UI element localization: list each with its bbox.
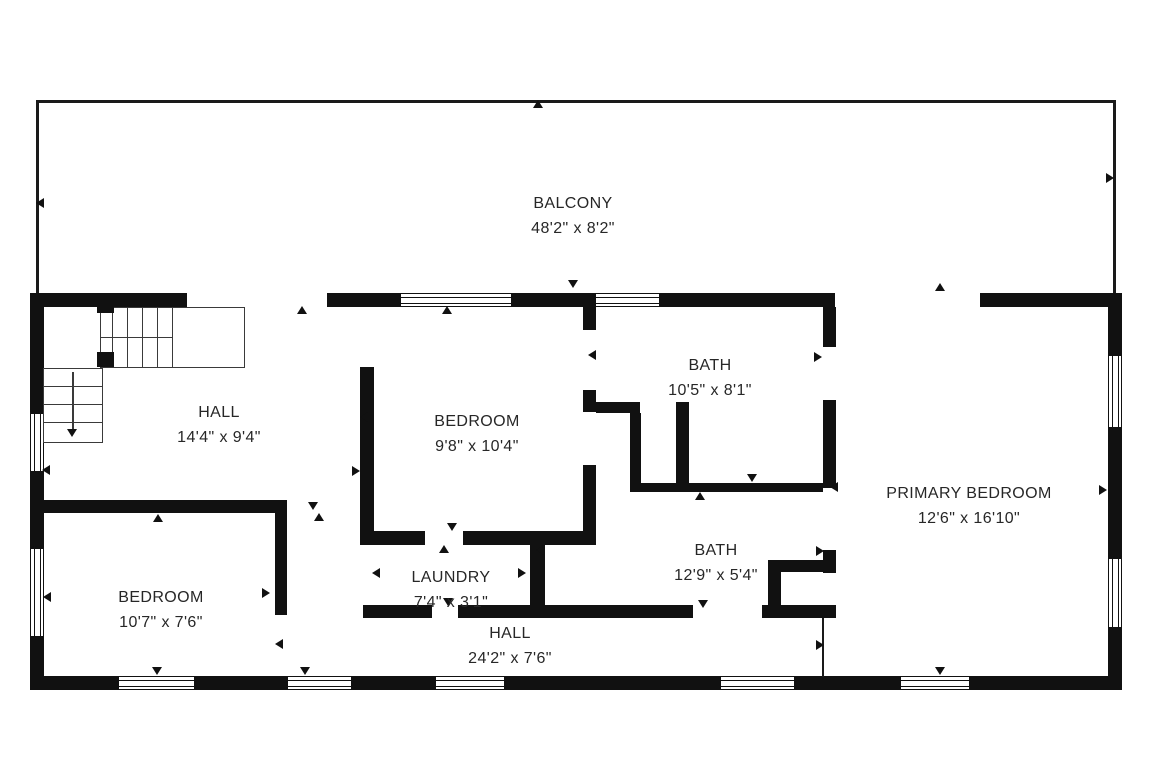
room-label: BEDROOM9'8" x 10'4" [434,409,519,459]
window-glass-line [595,297,660,304]
door-marker [816,640,824,650]
wall-segment [583,390,596,412]
wall-segment [360,367,374,545]
door-marker [153,514,163,522]
wall-segment [762,605,836,618]
wall-segment [512,293,595,307]
door-marker [352,466,360,476]
room-dimensions: 24'2" x 7'6" [468,646,552,671]
door-marker [36,198,44,208]
wall-segment [1108,428,1122,558]
wall-segment [676,402,689,492]
room-dimensions: 12'6" x 16'10" [886,506,1051,531]
floor-plan: BALCONY48'2" x 8'2"HALL14'4" x 9'4"BEDRO… [0,0,1152,768]
door-marker [747,474,757,482]
room-name: BATH [674,538,758,563]
room-name: LAUNDRY [412,565,491,590]
room-label: BATH12'9" x 5'4" [674,538,758,588]
door-marker [698,600,708,608]
railing-line [36,100,39,293]
door-marker [152,667,162,675]
wall-segment [980,293,1122,307]
window-glass-line [1112,558,1119,628]
wall-segment [596,402,640,413]
door-marker [372,568,380,578]
window [435,676,505,690]
room-name: HALL [468,621,552,646]
window-glass-line [400,297,512,304]
wall-segment [44,500,287,513]
railing-line [36,100,1115,103]
window [400,293,512,307]
door-marker [300,667,310,675]
room-dimensions: 12'9" x 5'4" [674,563,758,588]
door-marker [816,546,824,556]
door-marker [360,412,368,422]
door-marker [1099,485,1107,495]
door-marker [42,465,50,475]
room-dimensions: 14'4" x 9'4" [177,425,261,450]
door-marker [43,592,51,602]
room-name: BEDROOM [118,585,203,610]
room-label: HALL24'2" x 7'6" [468,621,552,671]
door-marker [314,513,324,521]
door-marker [439,545,449,553]
wall-segment [352,676,435,690]
window-glass-line [720,680,795,687]
stair-tread [172,307,173,368]
room-name: HALL [177,400,261,425]
wall-segment [30,472,44,548]
wall-segment [823,307,836,347]
door-marker [588,350,596,360]
room-dimensions: 48'2" x 8'2" [531,216,615,241]
wall-segment [327,293,400,307]
room-label: LAUNDRY7'4" x 3'1" [412,565,491,615]
window-glass-line [900,680,970,687]
door-marker [1106,173,1114,183]
wall-segment [1108,293,1122,355]
wall-segment [458,605,693,618]
door-marker [814,352,822,362]
wall-segment [30,637,44,690]
room-name: BALCONY [531,191,615,216]
wall-segment [583,307,596,330]
room-label: PRIMARY BEDROOM12'6" x 16'10" [886,481,1051,531]
door-marker [935,667,945,675]
wall-segment [630,413,641,492]
wall-segment [970,676,1122,690]
room-name: BEDROOM [434,409,519,434]
room-label: BEDROOM10'7" x 7'6" [118,585,203,635]
door-marker [830,482,838,492]
window-glass-line [34,548,41,637]
room-label: BATH10'5" x 8'1" [668,353,752,403]
stair-newel-post [97,301,114,313]
wall-segment [660,293,835,307]
wall-segment [630,483,823,492]
room-name: BATH [668,353,752,378]
wall-segment [275,500,287,615]
stair-newel-post [97,352,114,367]
door-marker [447,523,457,531]
window [30,548,44,637]
railing-line [1113,100,1116,293]
window [287,676,352,690]
stair-down-arrow-head [67,429,77,437]
wall-segment [360,531,425,545]
door-marker [308,502,318,510]
door-marker [262,588,270,598]
window [30,413,44,472]
room-dimensions: 10'7" x 7'6" [118,610,203,635]
door-marker [533,100,543,108]
room-dimensions: 7'4" x 3'1" [412,590,491,615]
window [118,676,195,690]
wall-segment [1108,628,1122,690]
wall-segment [795,676,900,690]
door-marker [935,283,945,291]
stair-landing-line [100,337,172,338]
room-dimensions: 9'8" x 10'4" [434,434,519,459]
room-name: PRIMARY BEDROOM [886,481,1051,506]
door-marker [536,545,544,555]
window [900,676,970,690]
wall-segment [30,293,44,413]
door-marker [568,280,578,288]
window-glass-line [1112,355,1119,428]
window-glass-line [118,680,195,687]
door-marker [275,639,283,649]
window [1108,558,1122,628]
room-label: HALL14'4" x 9'4" [177,400,261,450]
window-glass-line [435,680,505,687]
room-dimensions: 10'5" x 8'1" [668,378,752,403]
window [595,293,660,307]
window-glass-line [287,680,352,687]
door-marker [695,492,705,500]
door-marker [442,306,452,314]
window [1108,355,1122,428]
wall-segment [195,676,287,690]
wall-segment [823,400,836,488]
door-marker [518,568,526,578]
wall-segment [583,465,596,535]
door-marker [297,306,307,314]
window-glass-line [34,413,41,472]
room-label: BALCONY48'2" x 8'2" [531,191,615,241]
window [720,676,795,690]
wall-segment [505,676,720,690]
stair-down-arrow [72,372,74,430]
